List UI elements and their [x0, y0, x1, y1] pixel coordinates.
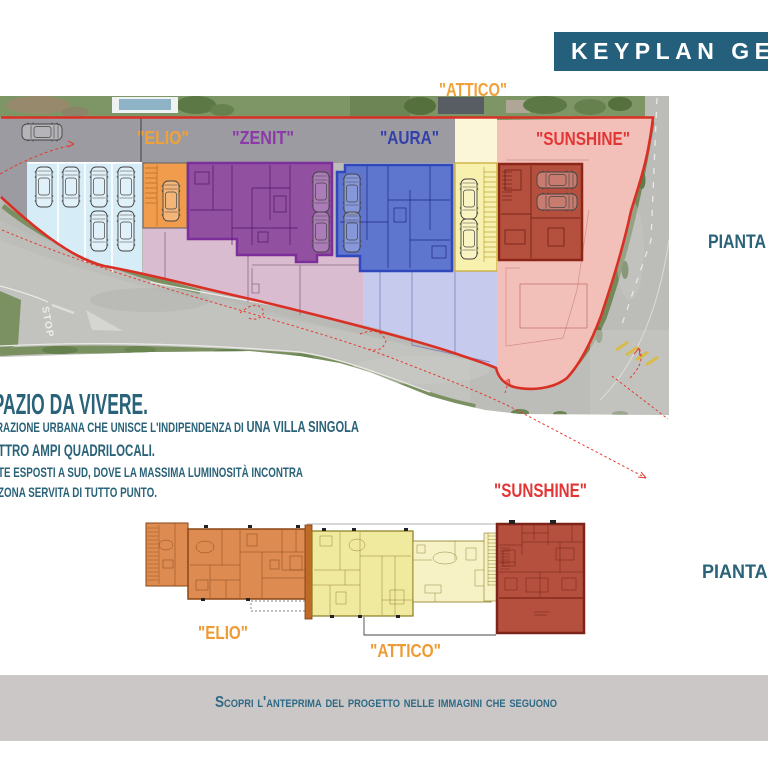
svg-text:PIANTA: PIANTA [708, 232, 766, 253]
svg-text:"SUNSHINE": "SUNSHINE" [494, 481, 587, 502]
svg-text:"ATTICO": "ATTICO" [439, 80, 507, 100]
svg-text:Scopri l'anteprima del progett: Scopri l'anteprima del progetto nelle im… [215, 694, 557, 711]
svg-text:TTRO AMPI QUADRILOCALI.: TTRO AMPI QUADRILOCALI. [0, 442, 155, 460]
svg-text:SPAZIO DA VIVERE.: SPAZIO DA VIVERE. [0, 389, 148, 421]
svg-text:"SUNSHINE": "SUNSHINE" [536, 129, 630, 149]
svg-text:RAZIONE URBANA CHE UNISCE L'IN: RAZIONE URBANA CHE UNISCE L'INDIPENDENZA… [0, 419, 359, 436]
svg-text:PIANTA P: PIANTA P [702, 562, 768, 583]
svg-text:"AURA": "AURA" [380, 128, 439, 148]
svg-text:"ZENIT": "ZENIT" [232, 128, 294, 148]
svg-text:"ELIO": "ELIO" [198, 623, 248, 643]
svg-text:ZONA SERVITA DI TUTTO PUNTO.: ZONA SERVITA DI TUTTO PUNTO. [0, 484, 157, 500]
svg-text:KEYPLAN GEN: KEYPLAN GEN [571, 38, 768, 64]
svg-text:"ATTICO": "ATTICO" [370, 641, 441, 661]
svg-text:TE ESPOSTI A SUD, DOVE LA MASS: TE ESPOSTI A SUD, DOVE LA MASSIMA LUMINO… [0, 464, 303, 480]
svg-text:"ELIO": "ELIO" [137, 128, 189, 148]
